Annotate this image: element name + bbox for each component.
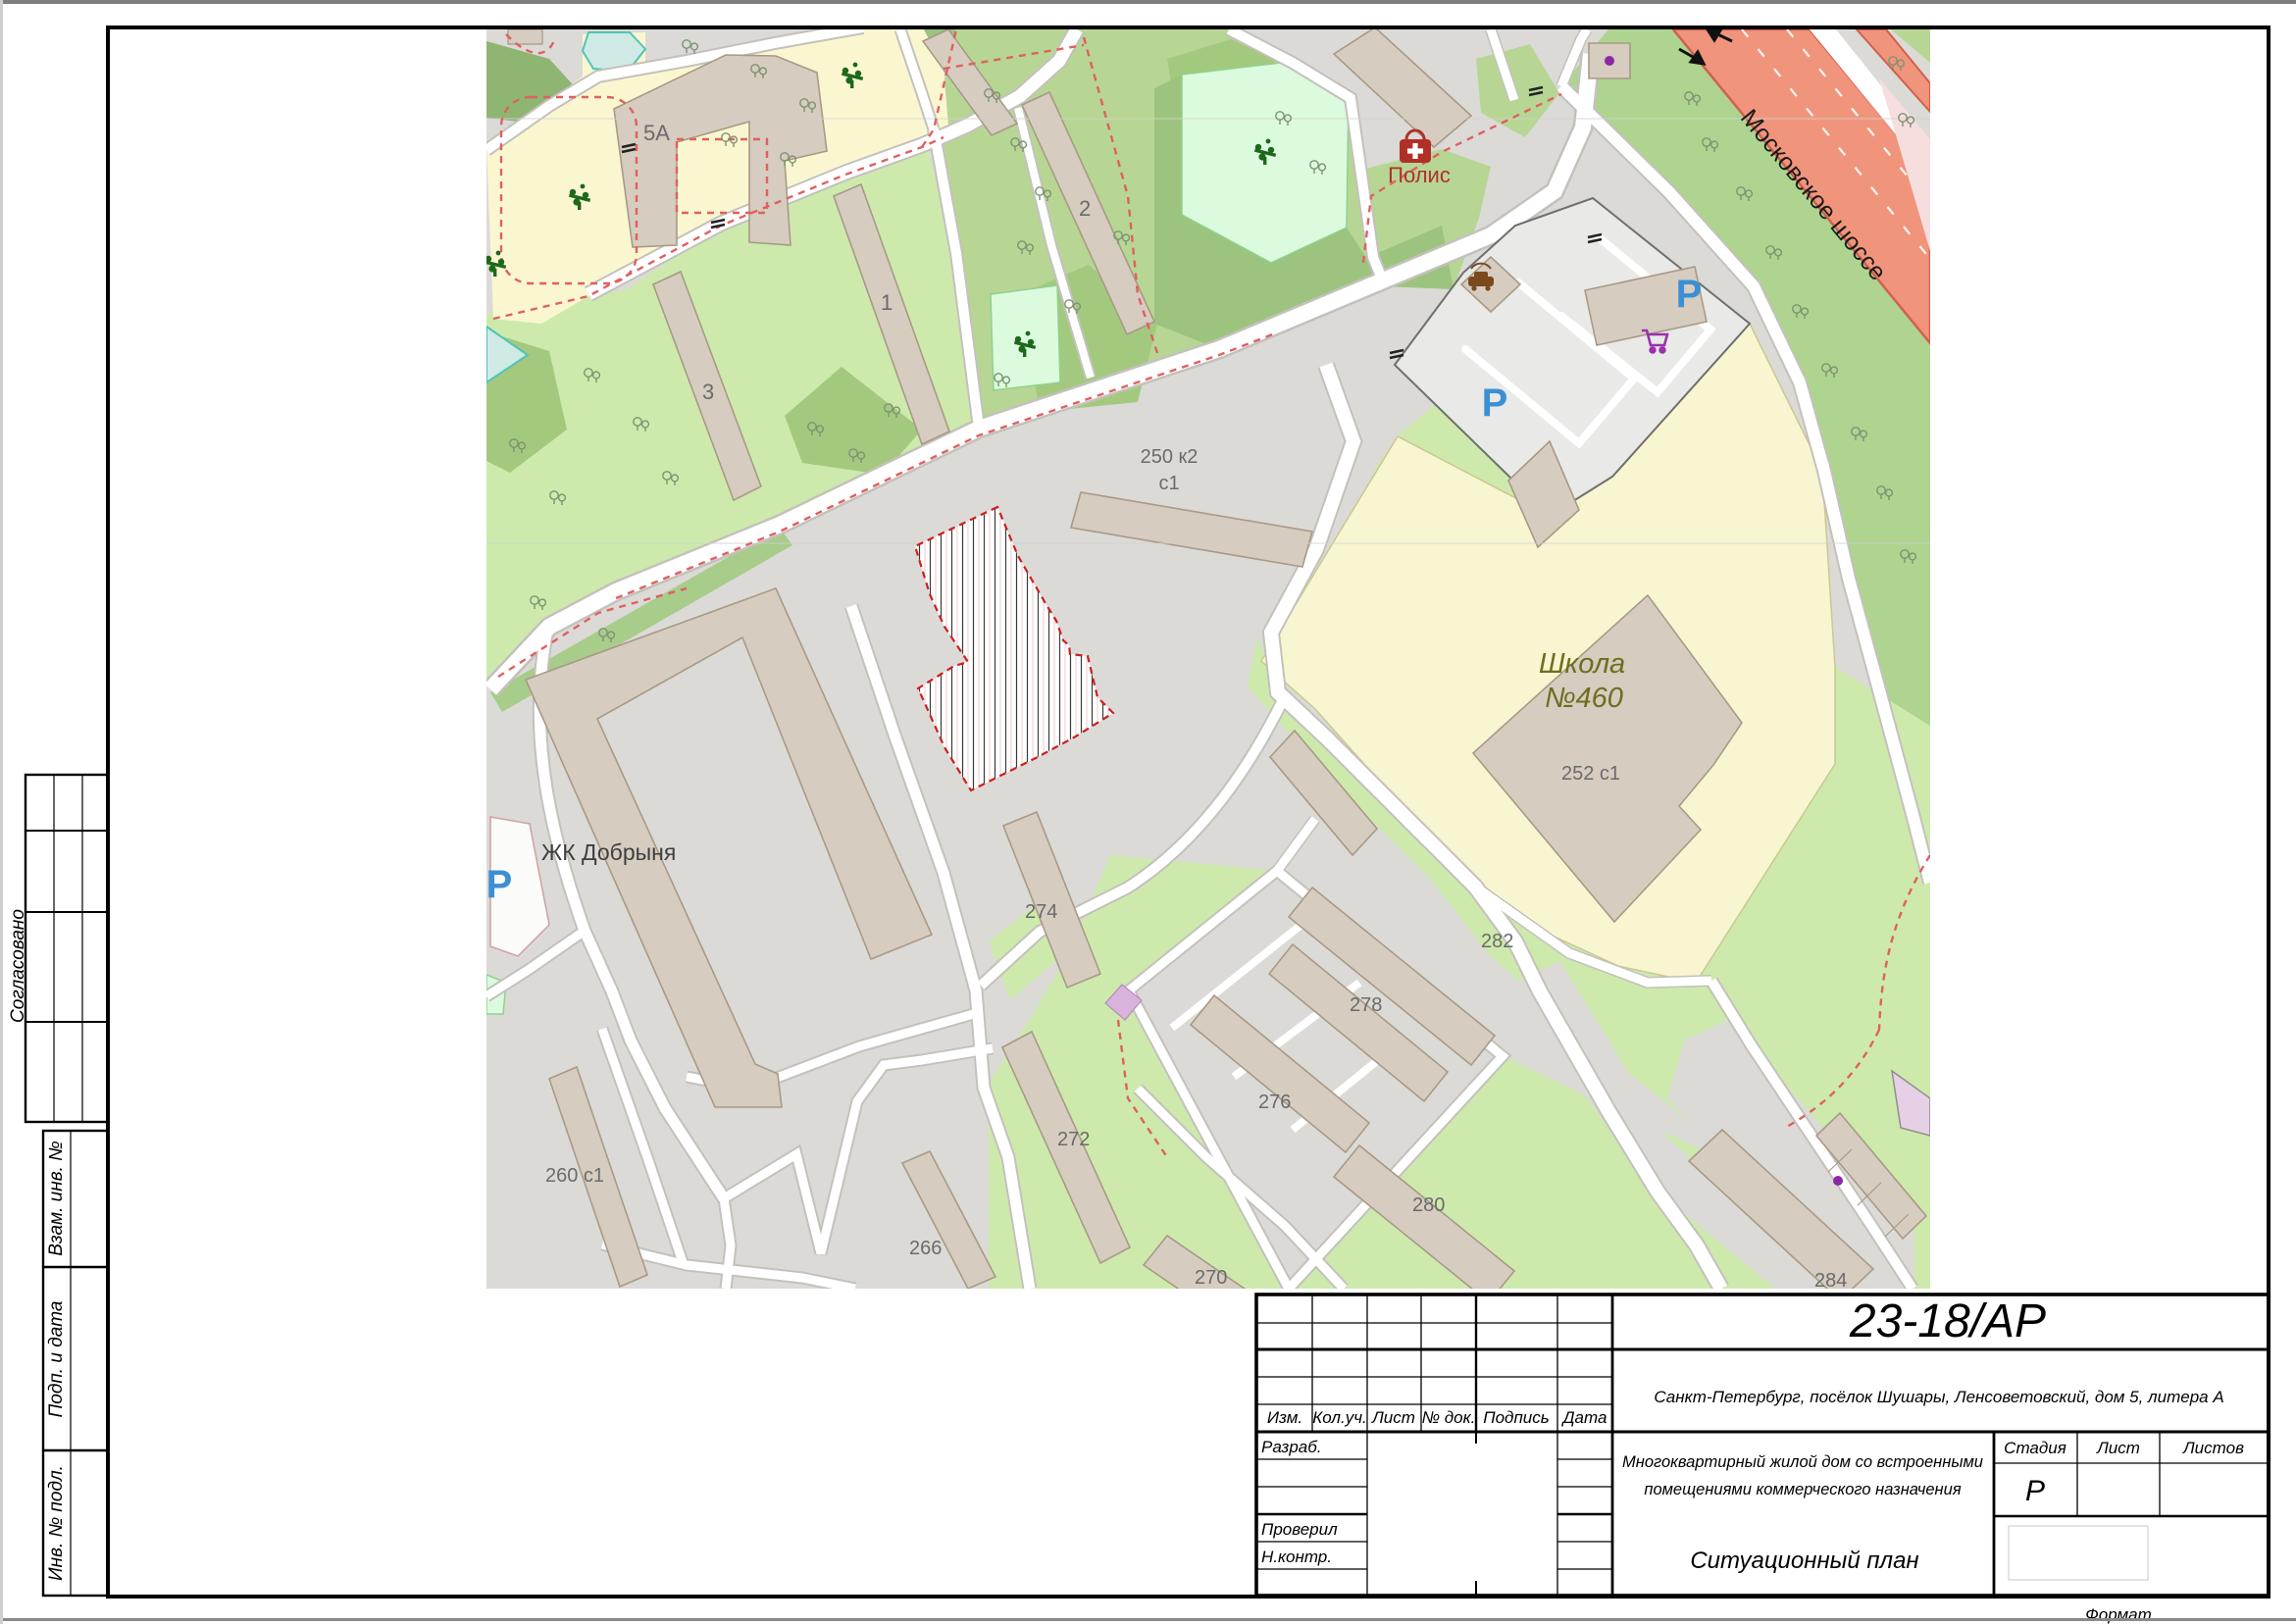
svg-text:Р: Р bbox=[1482, 381, 1508, 425]
svg-text:250 к2: 250 к2 bbox=[1141, 446, 1199, 468]
svg-text:Листов: Листов bbox=[2182, 1439, 2244, 1457]
svg-text:274: 274 bbox=[1025, 901, 1057, 923]
svg-text:Н.контр.: Н.контр. bbox=[1261, 1548, 1332, 1566]
svg-text:Дата: Дата bbox=[1561, 1408, 1607, 1427]
svg-text:Подп. и дата: Подп. и дата bbox=[46, 1301, 67, 1418]
svg-text:Проверил: Проверил bbox=[1261, 1520, 1338, 1539]
svg-text:Р: Р bbox=[1676, 273, 1703, 316]
svg-text:Формат: Формат bbox=[2085, 1605, 2152, 1624]
svg-text:1: 1 bbox=[881, 290, 893, 315]
svg-text:Р: Р bbox=[2025, 1475, 2045, 1507]
svg-text:Инв. № подл.: Инв. № подл. bbox=[46, 1465, 67, 1581]
svg-text:Разраб.: Разраб. bbox=[1261, 1438, 1322, 1456]
svg-text:ЖК Добрыня: ЖК Добрыня bbox=[541, 839, 676, 865]
svg-text:№ док.: № док. bbox=[1422, 1408, 1476, 1427]
svg-text:272: 272 bbox=[1057, 1129, 1090, 1150]
svg-text:№460: №460 bbox=[1545, 683, 1623, 714]
svg-text:Р: Р bbox=[486, 863, 513, 906]
svg-text:Стадия: Стадия bbox=[2004, 1439, 2066, 1457]
svg-text:Лист: Лист bbox=[1371, 1408, 1415, 1427]
svg-text:Полис: Полис bbox=[1388, 163, 1451, 187]
svg-text:284: 284 bbox=[1814, 1270, 1847, 1292]
svg-text:помещениями коммерческого на: помещениями коммерческого назначения bbox=[1644, 1481, 1961, 1498]
svg-text:Кол.уч.: Кол.уч. bbox=[1312, 1408, 1366, 1427]
svg-text:Взам. инв. №: Взам. инв. № bbox=[46, 1141, 67, 1256]
svg-text:Ситуационный план: Ситуационный план bbox=[1690, 1548, 1918, 1574]
svg-text:Санкт-Петербург, посёлок Шуш: Санкт-Петербург, посёлок Шушары, Ленсове… bbox=[1654, 1388, 2223, 1406]
svg-text:260 с1: 260 с1 bbox=[545, 1165, 604, 1187]
svg-text:с1: с1 bbox=[1158, 473, 1179, 494]
svg-text:5А: 5А bbox=[643, 121, 670, 145]
svg-text:Подпись: Подпись bbox=[1483, 1408, 1549, 1427]
svg-text:Лист: Лист bbox=[2096, 1439, 2140, 1457]
svg-text:3: 3 bbox=[702, 380, 714, 404]
svg-text:2: 2 bbox=[1079, 196, 1091, 221]
svg-text:23-18/АР: 23-18/АР bbox=[1849, 1295, 2046, 1347]
svg-text:276: 276 bbox=[1258, 1091, 1291, 1113]
svg-text:270: 270 bbox=[1195, 1267, 1227, 1289]
svg-text:278: 278 bbox=[1350, 994, 1382, 1016]
svg-text:Согласовано: Согласовано bbox=[8, 909, 28, 1023]
svg-text:252 с1: 252 с1 bbox=[1561, 763, 1620, 785]
svg-text:280: 280 bbox=[1412, 1194, 1445, 1216]
svg-text:Многоквартирный жилой дом с: Многоквартирный жилой дом со встроенными bbox=[1622, 1453, 1983, 1471]
svg-text:Школа: Школа bbox=[1539, 648, 1625, 680]
svg-text:Изм.: Изм. bbox=[1267, 1408, 1302, 1427]
svg-text:266: 266 bbox=[909, 1238, 942, 1259]
svg-text:282: 282 bbox=[1481, 931, 1513, 952]
